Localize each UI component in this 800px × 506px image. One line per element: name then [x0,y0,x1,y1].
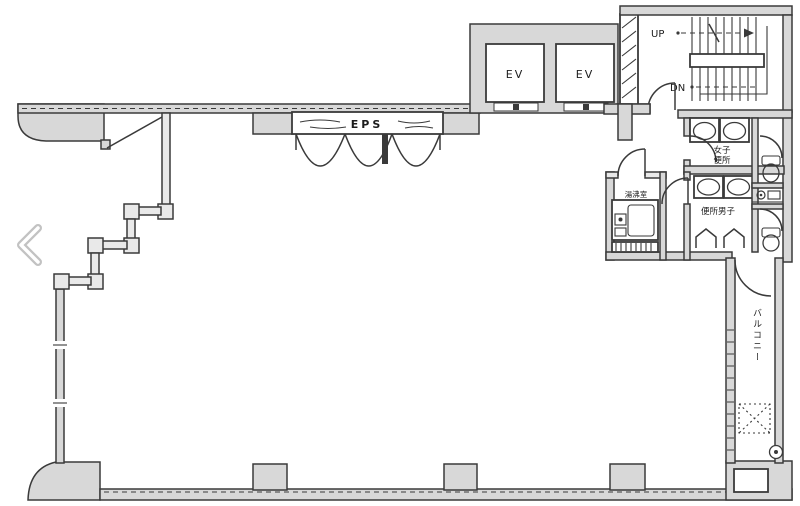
stall-shelf-wall-2 [752,204,783,209]
toilet-icon [762,228,780,251]
womens-toilet-label-1: 女子 [713,145,731,156]
wall-bottom-left-block [28,462,100,500]
kitchen-right-wall [660,172,666,260]
wall-left [56,289,64,463]
balcony-label: バルコニー [751,308,762,363]
toilet-top-wall [678,110,792,118]
womens-left-wall-a [684,118,690,136]
zigzag-column [54,274,69,289]
column-bottom-1 [253,464,287,490]
elevator-2-label: EV [576,68,594,81]
sanitary-block: 湯沸室 女子 便所 [604,104,792,260]
elevator-block: EV EV [470,14,638,113]
toilet-icon [694,176,723,198]
stall-door [760,136,782,158]
chevron-left-icon [21,228,38,262]
wall-right-upper [783,112,792,262]
balcony-right-wall [775,258,783,463]
toilet-icon [690,118,719,142]
eps-shoulder-left [253,113,293,134]
floor-plan-viewer: EPS EV EV UP [0,0,800,506]
zigzag-column [88,238,103,253]
balcony: バルコニー [726,258,783,463]
exterior-walls [18,104,792,500]
bottom-right-inset [734,469,768,492]
elevator-door-tick [513,104,519,110]
womens-mens-divider [684,166,784,174]
column-bottom-2 [444,464,477,490]
kitchenette-label: 湯沸室 [625,189,648,199]
mens-left-wall-b [684,204,690,260]
kitchen-knob [619,218,623,222]
balcony-door-arc [735,260,771,296]
stair-right-wall [783,15,792,112]
zigzag-segment [162,113,170,209]
kitchenette-room: 湯沸室 [606,149,666,260]
stair-up-label: UP [651,29,664,40]
elevator-1-label: EV [506,68,524,81]
elevator-door-tick [583,104,589,110]
prev-image-button[interactable] [21,228,38,262]
entry-door-top-left [101,117,162,149]
drain-icon [770,446,783,459]
handrail [690,54,764,67]
stall-shelf-wall-1 [752,183,783,188]
urinal-icon [724,229,744,248]
stair-down-label: DN [670,83,685,94]
up-arrow [676,24,754,42]
kitchen-door [618,149,645,176]
zigzag-column [124,204,139,219]
balcony-left-wall [726,258,735,463]
mens-toilet-room: 便所男子 [662,172,753,260]
floor-plan-image: EPS EV EV UP [0,0,800,506]
zigzag-segment [101,241,127,249]
block-bottom-wall [606,252,732,260]
kitchen-top-wall-a [606,172,618,178]
toilet-icon [720,118,749,142]
urinal-icon [696,229,716,248]
toilet-stalls [752,118,783,252]
mens-toilet-label: 便所男子 [701,206,736,217]
womens-toilet-room: 女子 便所 [684,118,784,174]
eps-shaft: EPS [253,112,479,166]
eps-shoulder-right [442,113,479,134]
toilet-icon [724,176,753,198]
lobby-t-column-stem [618,104,632,140]
zigzag-segment [67,277,91,285]
column-bottom-3 [610,464,645,490]
door-leaf [107,117,162,148]
stair-top-wall [620,6,792,15]
staircase: UP DN [617,6,792,113]
entrance-doors [296,134,440,166]
eps-label: EPS [351,118,384,131]
escape-hatch-icon [739,404,770,433]
door-swing-arcs [296,134,440,166]
womens-toilet-label-2: 便所 [713,155,731,166]
